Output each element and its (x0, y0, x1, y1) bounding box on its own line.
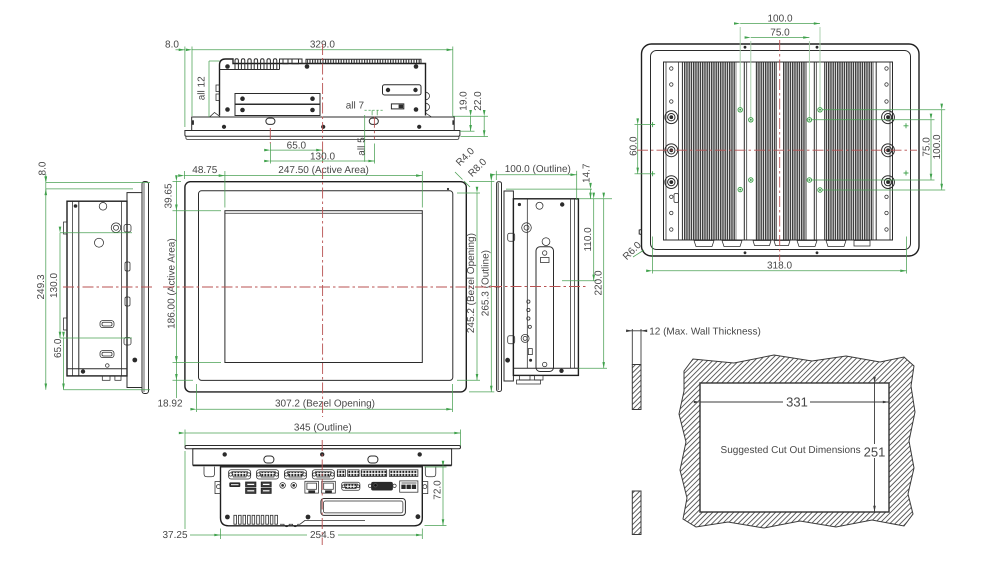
svg-text:39.65: 39.65 (163, 183, 174, 208)
svg-text:all 5: all 5 (357, 137, 368, 156)
svg-text:318.0: 318.0 (767, 260, 792, 271)
svg-text:110.0: 110.0 (583, 227, 594, 252)
svg-text:100.0 (Outline): 100.0 (Outline) (505, 164, 571, 175)
svg-text:75.0: 75.0 (922, 137, 933, 157)
svg-text:Suggested Cut Out Dimensions: Suggested Cut Out Dimensions (721, 445, 861, 456)
svg-text:245.2 (Bezel Opening): 245.2 (Bezel Opening) (466, 233, 477, 333)
svg-text:75.0: 75.0 (770, 28, 790, 39)
svg-text:12 (Max. Wall Thickness): 12 (Max. Wall Thickness) (649, 327, 761, 338)
svg-text:37.25: 37.25 (162, 530, 187, 541)
svg-text:100.0: 100.0 (767, 14, 792, 25)
svg-text:22.0: 22.0 (473, 91, 484, 111)
svg-text:all 12: all 12 (197, 76, 208, 100)
svg-text:345 (Outline): 345 (Outline) (294, 423, 352, 434)
svg-text:all 7: all 7 (346, 101, 365, 112)
svg-text:307.2 (Bezel Opening): 307.2 (Bezel Opening) (275, 399, 375, 410)
svg-text:251: 251 (864, 445, 886, 460)
svg-text:65.0: 65.0 (53, 338, 64, 358)
svg-text:60.0: 60.0 (629, 136, 640, 156)
svg-text:331: 331 (786, 395, 808, 410)
svg-text:65.0: 65.0 (287, 141, 307, 152)
svg-text:8.0: 8.0 (37, 161, 48, 175)
svg-text:249.3: 249.3 (36, 274, 47, 299)
svg-text:8.0: 8.0 (165, 40, 179, 51)
svg-text:186.00 (Active Area): 186.00 (Active Area) (166, 238, 177, 329)
svg-text:265.3 (Outline): 265.3 (Outline) (481, 250, 492, 316)
svg-text:48.75: 48.75 (192, 165, 217, 176)
svg-text:220.0: 220.0 (594, 270, 605, 295)
svg-text:19.0: 19.0 (459, 91, 470, 111)
svg-text:100.0: 100.0 (932, 134, 943, 159)
svg-text:130.0: 130.0 (49, 273, 60, 298)
svg-text:18.92: 18.92 (157, 399, 182, 410)
svg-text:247.50 (Active Area): 247.50 (Active Area) (278, 165, 369, 176)
svg-text:254.5: 254.5 (310, 530, 335, 541)
svg-text:72.0: 72.0 (433, 480, 444, 500)
svg-text:14.7: 14.7 (582, 163, 593, 183)
